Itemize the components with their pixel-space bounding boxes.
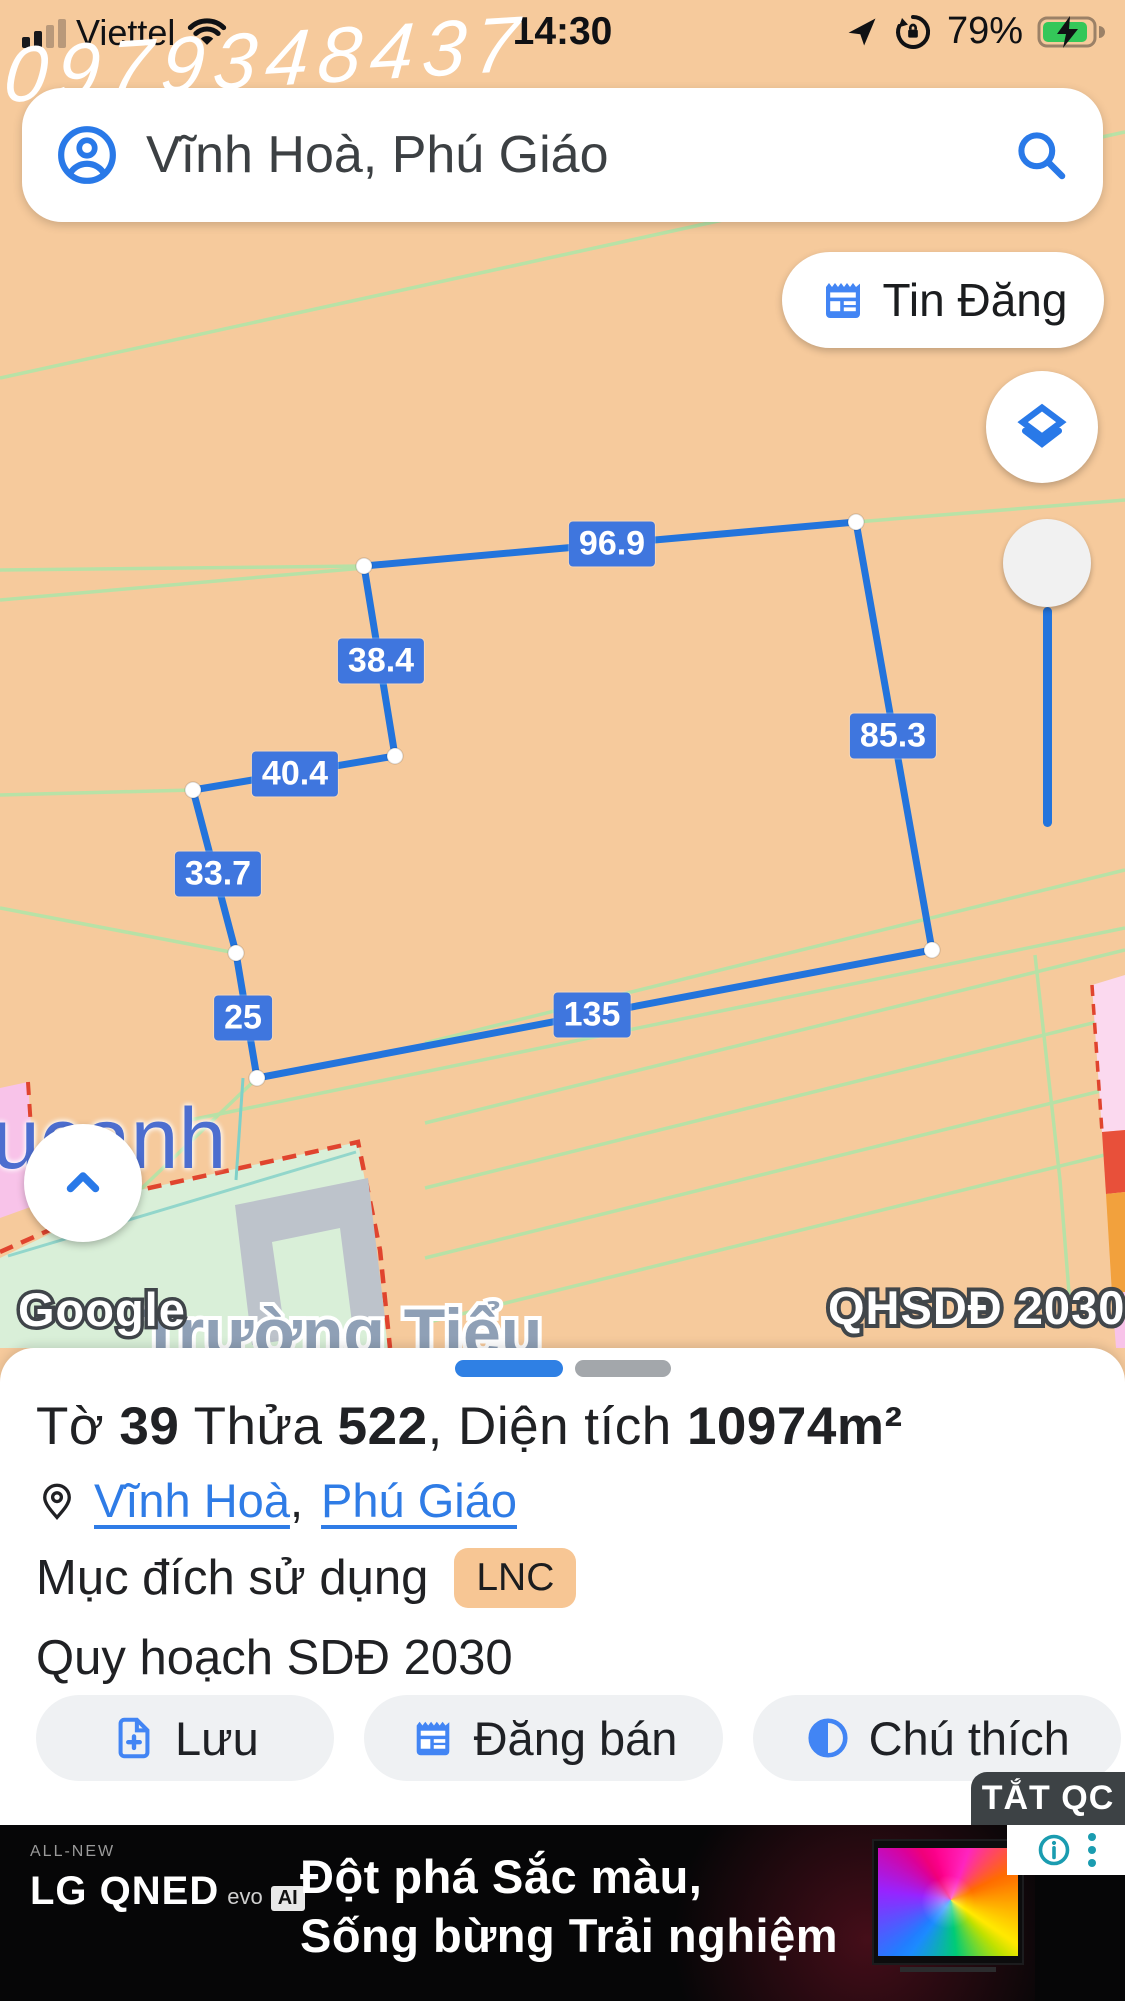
layers-icon xyxy=(1013,398,1071,456)
ad-menu-dots-icon[interactable] xyxy=(1088,1833,1096,1867)
land-use-label: Mục đích sử dụng xyxy=(36,1550,428,1606)
page-indicator xyxy=(0,1360,1125,1377)
search-icon[interactable] xyxy=(1013,127,1069,183)
ad-banner[interactable]: ALL-NEW LG QNED evo AI Đột phá Sắc màu, … xyxy=(0,1825,1125,2001)
sell-button[interactable]: Đăng bán xyxy=(364,1695,724,1781)
rotation-lock-icon xyxy=(893,12,933,52)
layers-button[interactable] xyxy=(986,371,1098,483)
save-doc-icon xyxy=(111,1715,157,1761)
ad-evo-label: evo xyxy=(227,1884,262,1910)
account-icon[interactable] xyxy=(56,124,118,186)
listing-icon xyxy=(410,1715,456,1761)
sell-button-label: Đăng bán xyxy=(474,1711,678,1766)
chevron-up-icon xyxy=(53,1153,113,1213)
land-use-badge: LNC xyxy=(454,1548,576,1608)
legend-button-label: Chú thích xyxy=(869,1711,1070,1766)
link-separator: , xyxy=(290,1473,303,1528)
ad-info-icon[interactable] xyxy=(1036,1832,1072,1868)
place-pin-icon xyxy=(36,1480,78,1522)
listings-button[interactable]: Tin Đăng xyxy=(782,252,1104,348)
ad-brand-block: ALL-NEW LG QNED evo AI xyxy=(30,1843,305,1914)
edge-length-label: 135 xyxy=(554,993,631,1038)
page-dot xyxy=(575,1360,671,1377)
ad-controls xyxy=(1007,1825,1125,1875)
search-input[interactable]: Vĩnh Hoà, Phú Giáo xyxy=(146,125,1013,185)
plan-overlay-label: QHSDĐ 2030 xyxy=(828,1280,1125,1335)
map-slider-knob[interactable] xyxy=(1003,519,1091,607)
map-slider-track[interactable] xyxy=(1043,607,1052,827)
collapse-button[interactable] xyxy=(24,1124,142,1242)
listings-button-label: Tin Đăng xyxy=(883,273,1068,327)
edge-length-label: 38.4 xyxy=(338,639,424,684)
edge-length-label: 25 xyxy=(214,996,272,1041)
ad-tv-stand xyxy=(900,1967,996,1972)
listing-icon xyxy=(819,276,867,324)
legend-button[interactable]: Chú thích xyxy=(753,1695,1121,1781)
land-use-row: Mục đích sử dụng LNC xyxy=(36,1548,1089,1608)
google-attribution-logo: Google xyxy=(18,1282,186,1337)
planning-label: Quy hoạch SDĐ 2030 xyxy=(36,1630,1089,1686)
district-link[interactable]: Phú Giáo xyxy=(321,1473,517,1528)
dismiss-ad-button[interactable]: TẮT QC xyxy=(971,1772,1125,1825)
edge-length-label: 40.4 xyxy=(252,752,338,797)
save-button[interactable]: Lưu xyxy=(36,1695,334,1781)
contrast-icon xyxy=(805,1715,851,1761)
ad-headline: Đột phá Sắc màu, Sống bừng Trải nghiệm xyxy=(300,1847,838,1965)
page-dot-active xyxy=(455,1360,563,1377)
ward-link[interactable]: Vĩnh Hoà xyxy=(94,1473,290,1528)
edge-length-label: 96.9 xyxy=(569,522,655,567)
edge-length-label: 33.7 xyxy=(175,852,261,897)
action-buttons: Lưu Đăng bán xyxy=(36,1695,1121,1781)
ad-tv-screen xyxy=(878,1848,1018,1956)
location-services-icon xyxy=(845,15,879,49)
battery-charging-icon xyxy=(1037,15,1105,49)
parcel-info-sheet: Tờ 39 Thửa 522, Diện tích 10974m² Vĩnh H… xyxy=(0,1348,1125,1825)
ad-allnew-label: ALL-NEW xyxy=(30,1843,305,1861)
parcel-title: Tờ 39 Thửa 522, Diện tích 10974m² xyxy=(36,1396,1089,1457)
ad-tv-image xyxy=(872,1839,1024,1965)
app-screen: 96.9 38.4 85.3 40.4 33.7 25 135 ucanh Tr… xyxy=(0,0,1125,2001)
edge-length-label: 85.3 xyxy=(850,714,936,759)
ad-brand-label: LG QNED xyxy=(30,1869,219,1914)
battery-percent-label: 79% xyxy=(947,10,1023,53)
location-row: Vĩnh Hoà, Phú Giáo xyxy=(36,1473,1089,1528)
save-button-label: Lưu xyxy=(175,1711,259,1766)
